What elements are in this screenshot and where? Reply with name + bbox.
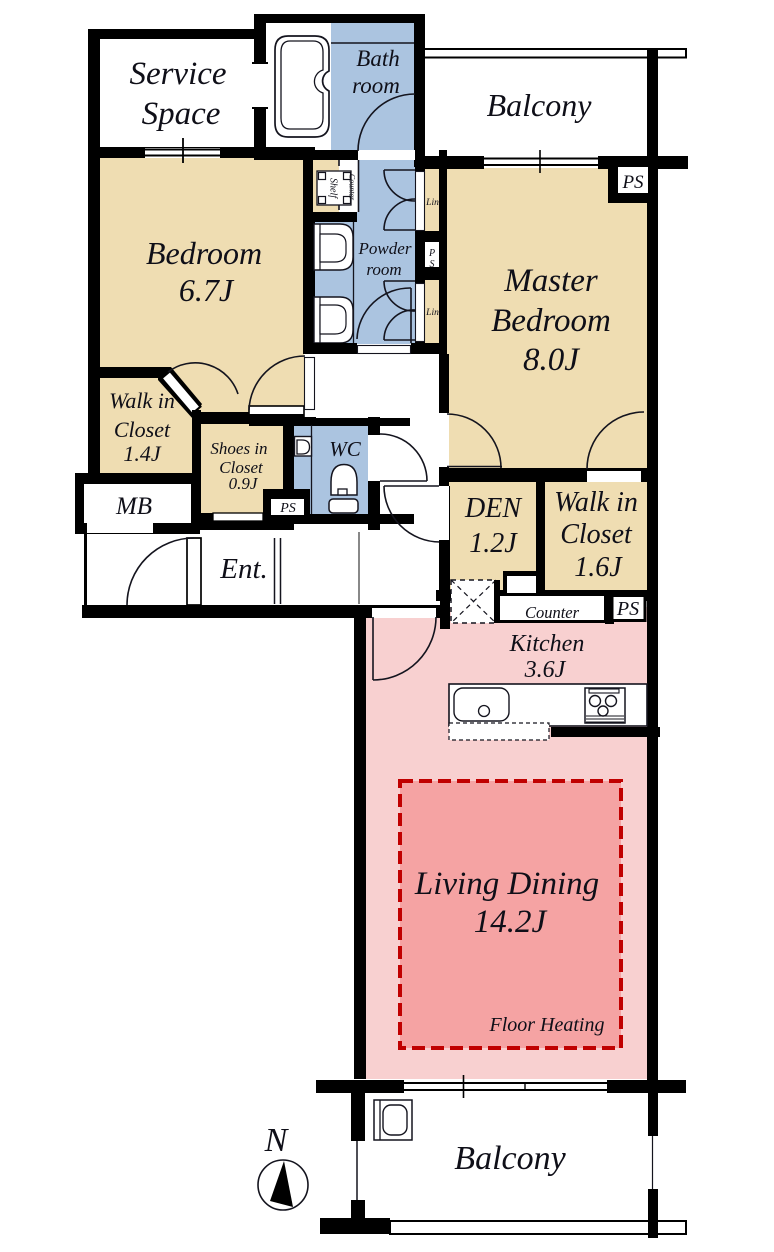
svg-text:0.9J: 0.9J xyxy=(229,474,259,493)
svg-text:Counter: Counter xyxy=(525,603,580,622)
svg-text:P: P xyxy=(428,248,435,259)
svg-text:Master: Master xyxy=(503,263,598,299)
svg-text:Walk in: Walk in xyxy=(554,487,638,518)
svg-text:14.2J: 14.2J xyxy=(474,904,548,940)
svg-text:room: room xyxy=(352,73,400,98)
svg-text:3.6J: 3.6J xyxy=(524,657,567,683)
svg-text:S: S xyxy=(430,259,435,270)
svg-text:8.0J: 8.0J xyxy=(523,342,580,378)
svg-text:MB: MB xyxy=(115,493,152,520)
svg-text:Bath: Bath xyxy=(356,46,399,71)
svg-text:6.7J: 6.7J xyxy=(179,272,235,308)
svg-text:Balcony: Balcony xyxy=(487,87,593,123)
svg-text:Kitchen: Kitchen xyxy=(509,631,585,657)
svg-text:Bedroom: Bedroom xyxy=(491,303,611,339)
svg-text:Shoes in: Shoes in xyxy=(210,439,267,458)
svg-text:Counter: Counter xyxy=(348,174,357,201)
svg-text:1.4J: 1.4J xyxy=(123,441,162,466)
svg-text:Service: Service xyxy=(129,56,226,92)
svg-text:N: N xyxy=(264,1122,290,1159)
svg-text:Living Dining: Living Dining xyxy=(414,866,599,902)
svg-text:Balcony: Balcony xyxy=(454,1140,566,1177)
svg-text:Lin: Lin xyxy=(425,198,439,208)
svg-text:Powder: Powder xyxy=(358,239,412,258)
svg-text:Walk in: Walk in xyxy=(109,388,175,413)
svg-text:Ent.: Ent. xyxy=(219,553,268,585)
svg-text:1.6J: 1.6J xyxy=(574,552,623,583)
svg-text:DEN: DEN xyxy=(464,493,522,524)
svg-text:Floor Heating: Floor Heating xyxy=(489,1014,605,1036)
svg-text:PS: PS xyxy=(621,172,644,193)
svg-text:Closet: Closet xyxy=(560,519,633,550)
svg-text:room: room xyxy=(366,260,401,279)
svg-text:1.2J: 1.2J xyxy=(469,528,518,559)
svg-text:Closet: Closet xyxy=(114,417,171,442)
svg-text:PS: PS xyxy=(279,501,296,516)
svg-text:Lin: Lin xyxy=(425,308,439,318)
svg-text:Bedroom: Bedroom xyxy=(146,235,262,271)
svg-text:PS: PS xyxy=(616,598,639,620)
svg-text:Shelf: Shelf xyxy=(328,178,339,199)
svg-text:WC: WC xyxy=(329,437,361,461)
svg-text:Space: Space xyxy=(142,96,221,132)
